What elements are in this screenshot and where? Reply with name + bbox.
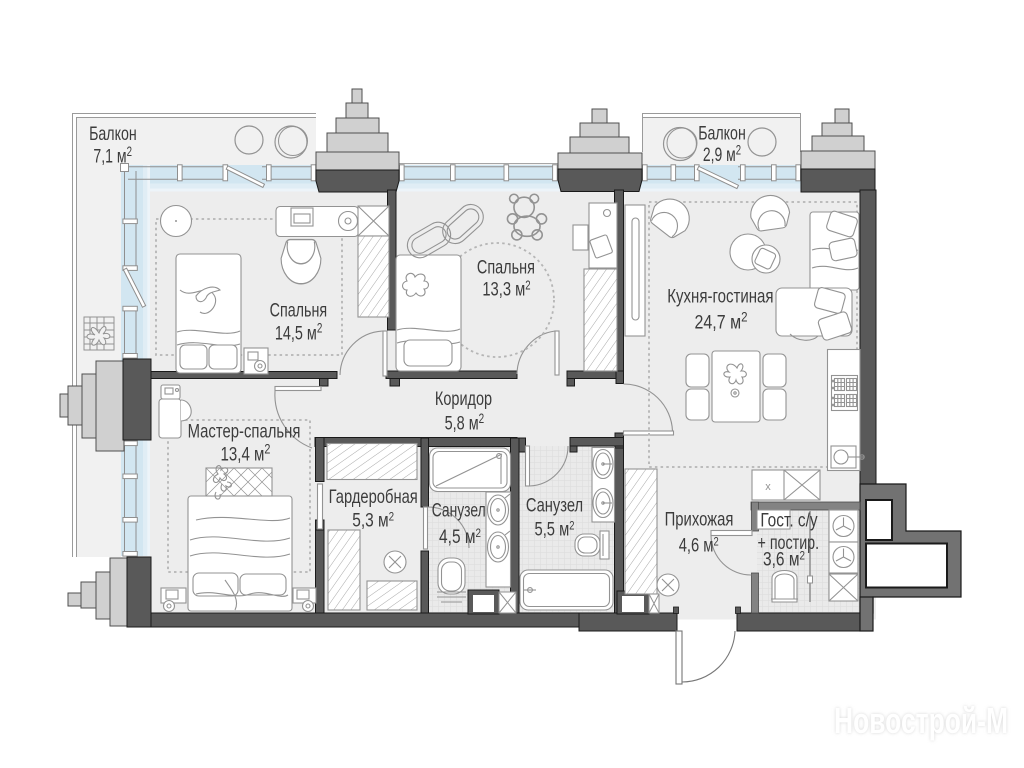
svg-text:5,8 м2: 5,8 м2 bbox=[445, 411, 485, 435]
svg-text:Новострой-М: Новострой-М bbox=[834, 700, 1008, 741]
svg-text:13,4 м2: 13,4 м2 bbox=[221, 441, 271, 466]
svg-text:Балкон: Балкон bbox=[89, 123, 137, 145]
svg-text:Коридор: Коридор bbox=[435, 388, 492, 410]
svg-text:Кухня-гостиная: Кухня-гостиная bbox=[667, 286, 773, 308]
svg-text:Спальня: Спальня bbox=[477, 257, 535, 279]
svg-text:Мастер-спальня: Мастер-спальня bbox=[188, 421, 301, 443]
svg-text:2,9 м2: 2,9 м2 bbox=[703, 142, 741, 166]
svg-text:Гост. с/у: Гост. с/у bbox=[760, 509, 817, 531]
svg-text:Прихожая: Прихожая bbox=[665, 509, 734, 531]
svg-text:Санузел: Санузел bbox=[432, 500, 486, 522]
svg-text:7,1 м2: 7,1 м2 bbox=[93, 144, 132, 168]
svg-text:4,6 м2: 4,6 м2 bbox=[679, 534, 719, 556]
svg-text:Балкон: Балкон bbox=[698, 123, 746, 145]
svg-text:Спальня: Спальня bbox=[270, 300, 328, 322]
svg-text:5,5 м2: 5,5 м2 bbox=[535, 518, 575, 540]
svg-text:13,3 м2: 13,3 м2 bbox=[482, 278, 530, 300]
svg-text:24,7 м2: 24,7 м2 bbox=[695, 309, 748, 334]
svg-text:Санузел: Санузел bbox=[526, 495, 583, 517]
svg-text:3,6 м2: 3,6 м2 bbox=[763, 548, 805, 570]
svg-text:5,3 м2: 5,3 м2 bbox=[352, 510, 394, 532]
svg-text:14,5 м2: 14,5 м2 bbox=[275, 321, 323, 345]
svg-text:x: x bbox=[765, 481, 771, 493]
svg-text:Гардеробная: Гардеробная bbox=[329, 486, 418, 508]
svg-text:4,5 м2: 4,5 м2 bbox=[439, 526, 481, 548]
